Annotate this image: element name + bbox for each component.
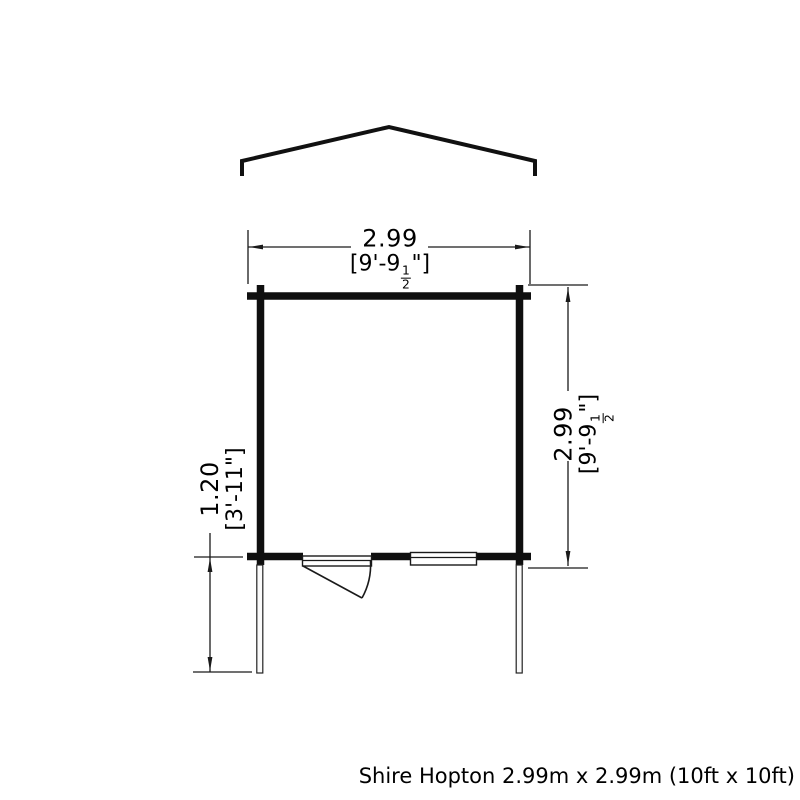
post-right: [516, 565, 522, 673]
window-frame: [411, 553, 477, 566]
veranda-posts: [257, 565, 522, 673]
width-imperial-value: [9'-912"]: [350, 253, 430, 292]
depth-arrow-top: [566, 288, 571, 302]
floor-plan-page: 2.99 [9'-912"] 2.99 [9'-912"] 1.20 [3'-1…: [0, 0, 800, 800]
porch-dimension: [193, 533, 252, 672]
porch-metric-value: 1.20: [198, 447, 224, 530]
depth-dimension-label: 2.99 [9'-912"]: [552, 394, 617, 474]
depth-metric-value: 2.99: [552, 394, 578, 474]
floor-plan-drawing: [0, 0, 800, 800]
width-arrow-left: [249, 245, 263, 250]
porch-imperial-value: [3'-11"]: [224, 447, 248, 530]
door-leaf: [303, 566, 362, 598]
porch-arrow-top: [208, 558, 213, 572]
width-metric-value: 2.99: [350, 227, 430, 253]
walls: [247, 285, 531, 565]
roof-outline: [242, 127, 535, 176]
window: [411, 553, 477, 566]
door: [303, 556, 372, 598]
depth-fraction: 12: [590, 413, 617, 423]
depth-arrow-bottom: [566, 551, 571, 565]
porch-arrow-bottom: [208, 657, 213, 671]
post-left: [257, 565, 263, 673]
width-arrow-right: [515, 245, 529, 250]
width-fraction: 12: [401, 265, 411, 292]
width-dimension-label: 2.99 [9'-912"]: [350, 227, 430, 292]
product-caption: Shire Hopton 2.99m x 2.99m (10ft x 10ft): [359, 763, 795, 789]
depth-imperial-value: [9'-912"]: [578, 394, 617, 474]
roof-ridge-line: [242, 127, 535, 176]
porch-dimension-label: 1.20 [3'-11"]: [198, 447, 248, 530]
